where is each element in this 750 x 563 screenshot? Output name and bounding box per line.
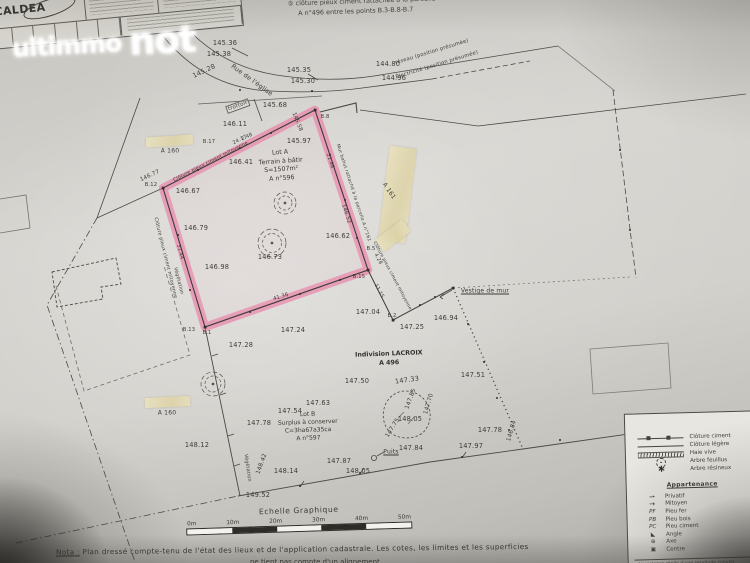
- elevation-label: 146.84: [506, 420, 518, 442]
- utility-note: réseau (position présumée): [394, 38, 469, 66]
- elevation-label: 147.75: [385, 417, 401, 438]
- boundary-point: B.2: [387, 313, 396, 319]
- elevation-label: 147.33: [394, 374, 419, 385]
- scale-tick-label: 50m: [398, 514, 411, 520]
- elevation-label: 146.98: [205, 263, 229, 271]
- street-name: Rue de l'église: [230, 62, 275, 98]
- elevation-label: 146.52: [340, 204, 352, 225]
- elevation-label: 145.28: [191, 62, 216, 80]
- legend-label: Angle: [666, 531, 682, 537]
- parcel-label: A 161: [381, 181, 397, 200]
- legend-label: Arbre résineux: [690, 465, 731, 472]
- arbre-resineux-icon: [638, 466, 684, 474]
- sidewalk-label: trottoir: [225, 98, 251, 114]
- fence-note: Clôture pieux ciment mitoyenne: [152, 217, 177, 299]
- dimension: 41.36: [273, 292, 290, 302]
- elevation-label: 145.30: [291, 77, 315, 85]
- legend-heading: Appartenance: [667, 479, 750, 488]
- legend-appartenance-rows: ⇀Privatif→MitoyenPFPieu ferPBPieu boisPC…: [639, 490, 750, 554]
- legend-footer: L'existence réelle d'une servitude conve…: [635, 556, 750, 563]
- legend-label: Axe: [666, 539, 677, 545]
- cloture-legere-icon: [638, 442, 684, 450]
- legend-label: Privatif: [665, 493, 685, 500]
- elevation-label: 146.62: [326, 232, 350, 240]
- utility-note: Électricité (position présumée): [395, 50, 479, 81]
- boundary-point: B.13: [183, 327, 196, 333]
- elevation-label: 145.35: [287, 66, 311, 74]
- feature-label: Vestige de mur: [461, 288, 509, 295]
- well-label: Puits: [383, 449, 398, 456]
- dimension: 21.48: [325, 153, 335, 169]
- elevation-label: 147.04: [356, 308, 380, 316]
- boundary-point: B.1: [202, 330, 211, 336]
- plan-note-line2: ne tient pas compte d'un alignement: [250, 558, 380, 563]
- boundary-point: B.17: [203, 139, 216, 145]
- elevation-label: 145.68: [263, 101, 287, 109]
- scale-tick-label: 40m: [355, 516, 368, 522]
- boundary-point: B.15: [353, 274, 366, 280]
- elevation-label: 147.78: [247, 419, 271, 427]
- legend-label: Arbre feuillus: [690, 457, 727, 464]
- lot-b-text: Lot BSurplus à conserver C=3ha67a35caA n…: [278, 410, 339, 444]
- legend-label: Clôture ciment: [689, 433, 730, 440]
- parcel-label: A 160: [161, 148, 179, 155]
- dimension: 11.15: [373, 283, 385, 299]
- boundary-point: B.12: [145, 182, 158, 188]
- scale-tick-label: 20m: [269, 519, 282, 525]
- legend-abbr: ▣: [640, 547, 666, 554]
- legend-abbr: PB: [640, 516, 666, 523]
- elevation-label: 147.63: [306, 399, 330, 407]
- legend-label: Haie vive: [690, 449, 716, 456]
- elevation-label: 147.87: [327, 457, 351, 465]
- legend-abbr: PC: [640, 524, 666, 531]
- legend-abbr: ◣: [640, 532, 666, 539]
- elevation-label: 148.14: [274, 467, 298, 475]
- lot-a-text: Lot ATerrain à bâtir S=1507m²A n°596: [258, 148, 304, 185]
- ownership-arrow-icon: →: [639, 500, 665, 509]
- legend-label: Pieu fer: [665, 508, 686, 515]
- elevation-label: 148.42: [256, 453, 269, 475]
- elevation-label: 145.36: [213, 39, 237, 47]
- fence-note: Clôture pieux ciment mitoyenne: [372, 241, 412, 311]
- elevation-label: 146.79: [184, 224, 208, 232]
- elevation-label: 146.73: [258, 253, 282, 261]
- legend-label: Pieu ciment: [666, 523, 699, 530]
- elevation-label: 147.50: [345, 377, 369, 385]
- elevation-label: 147.28: [229, 341, 253, 349]
- legend-label: Pieu bois: [665, 516, 690, 523]
- elevation-label: 147.51: [461, 371, 485, 379]
- elevation-label: 148.12: [185, 441, 209, 449]
- legend-label: Centre: [666, 546, 685, 552]
- elevation-label: 145.38: [207, 50, 231, 58]
- elevation-label: 146.41: [229, 158, 253, 166]
- cadastral-plan-photo: 145.36145.38145.28145.35145.30144.80144.…: [0, 0, 750, 563]
- elevation-label: 148.05: [346, 467, 370, 475]
- scale-tick-label: 30m: [312, 517, 325, 523]
- elevation-label: 146.94: [434, 314, 458, 322]
- elevation-label: 145.58: [290, 112, 303, 133]
- elevation-label: 145.97: [287, 137, 311, 145]
- scale-tick-label: 0m: [187, 521, 197, 527]
- indivision-text: Indivision LACROIXA 496: [355, 349, 423, 368]
- elevation-label: 146.11: [223, 120, 247, 128]
- elevation-label: 147.97: [459, 442, 483, 450]
- elevation-label: 147.84: [399, 444, 423, 452]
- legend-symbol-rows: Clôture cimentClôture légèreHaie viveArb…: [637, 431, 750, 474]
- wall-note: Mur bahut rattaché à la parcelle A n°161: [335, 144, 371, 243]
- scale-tick-label: 10m: [226, 520, 239, 526]
- elevation-label: 147.24: [281, 326, 305, 334]
- elevation-label: 147.25: [400, 323, 424, 331]
- legend-abbr: PF: [639, 509, 665, 516]
- watermark-text: not: [128, 17, 197, 63]
- elevation-label: 147.78: [478, 426, 502, 434]
- elevation-label: 146.67: [176, 187, 200, 195]
- elevation-label: 147.85: [405, 388, 418, 410]
- parcel-label: A 160: [158, 410, 176, 417]
- elevation-label: 146.77: [139, 169, 160, 183]
- legend-label: Mitoyen: [665, 501, 687, 508]
- dimension: 31.44: [175, 244, 185, 260]
- watermark-text: ultimmo: [11, 28, 122, 63]
- vegetation-note: Végétation: [243, 454, 252, 482]
- elevation-label: 147.70: [423, 393, 435, 415]
- boundary-point: B.8: [320, 114, 329, 120]
- elevation-label: 148.05: [398, 415, 422, 423]
- cloture-ciment-icon: [637, 434, 683, 442]
- legend-label: Clôture légère: [690, 441, 730, 448]
- legend-box: Clôture cimentClôture légèreHaie viveArb…: [624, 410, 750, 563]
- note-prefix: Nota :: [56, 547, 80, 556]
- legend-abbr: ⊕: [640, 539, 666, 546]
- elevation-label: 149.52: [246, 491, 270, 499]
